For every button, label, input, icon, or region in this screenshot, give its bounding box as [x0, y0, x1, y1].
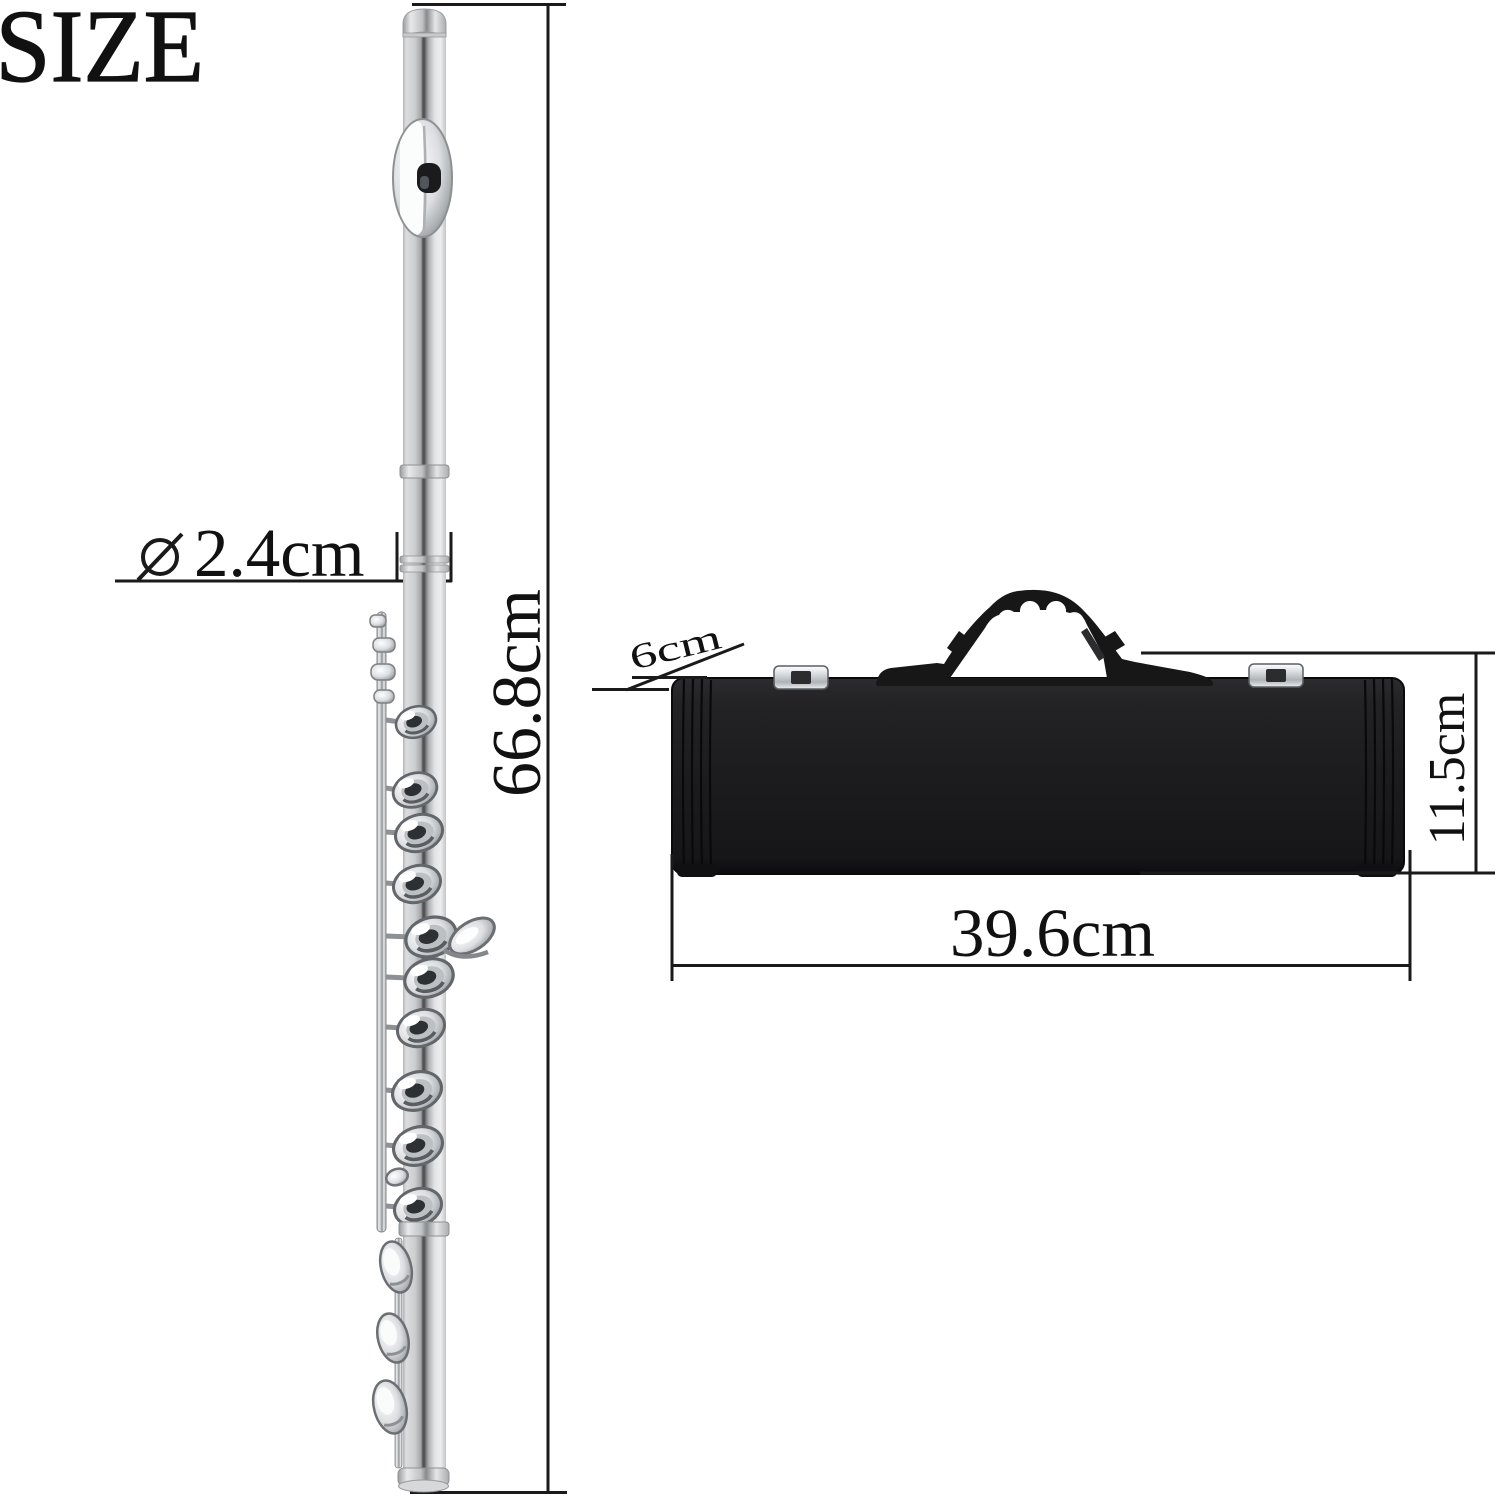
svg-text:39.6cm: 39.6cm: [950, 895, 1155, 971]
svg-text:66.8cm: 66.8cm: [479, 589, 556, 797]
svg-text:SIZE: SIZE: [0, 0, 204, 104]
svg-text:11.5cm: 11.5cm: [1419, 693, 1476, 846]
svg-text:6cm: 6cm: [625, 617, 725, 678]
